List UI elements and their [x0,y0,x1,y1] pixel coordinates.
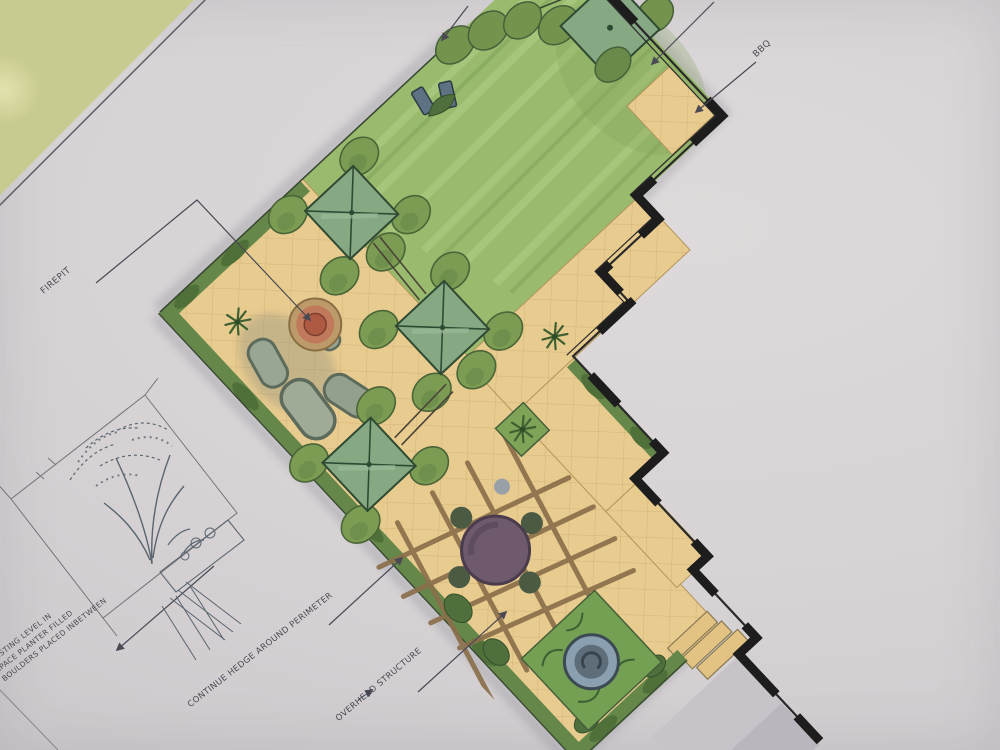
table-highlight [0,55,40,125]
photo-of-garden-plan: FIREPIT BBQ EXISTING LEVEL IN SPACE PLAN… [0,0,1000,750]
